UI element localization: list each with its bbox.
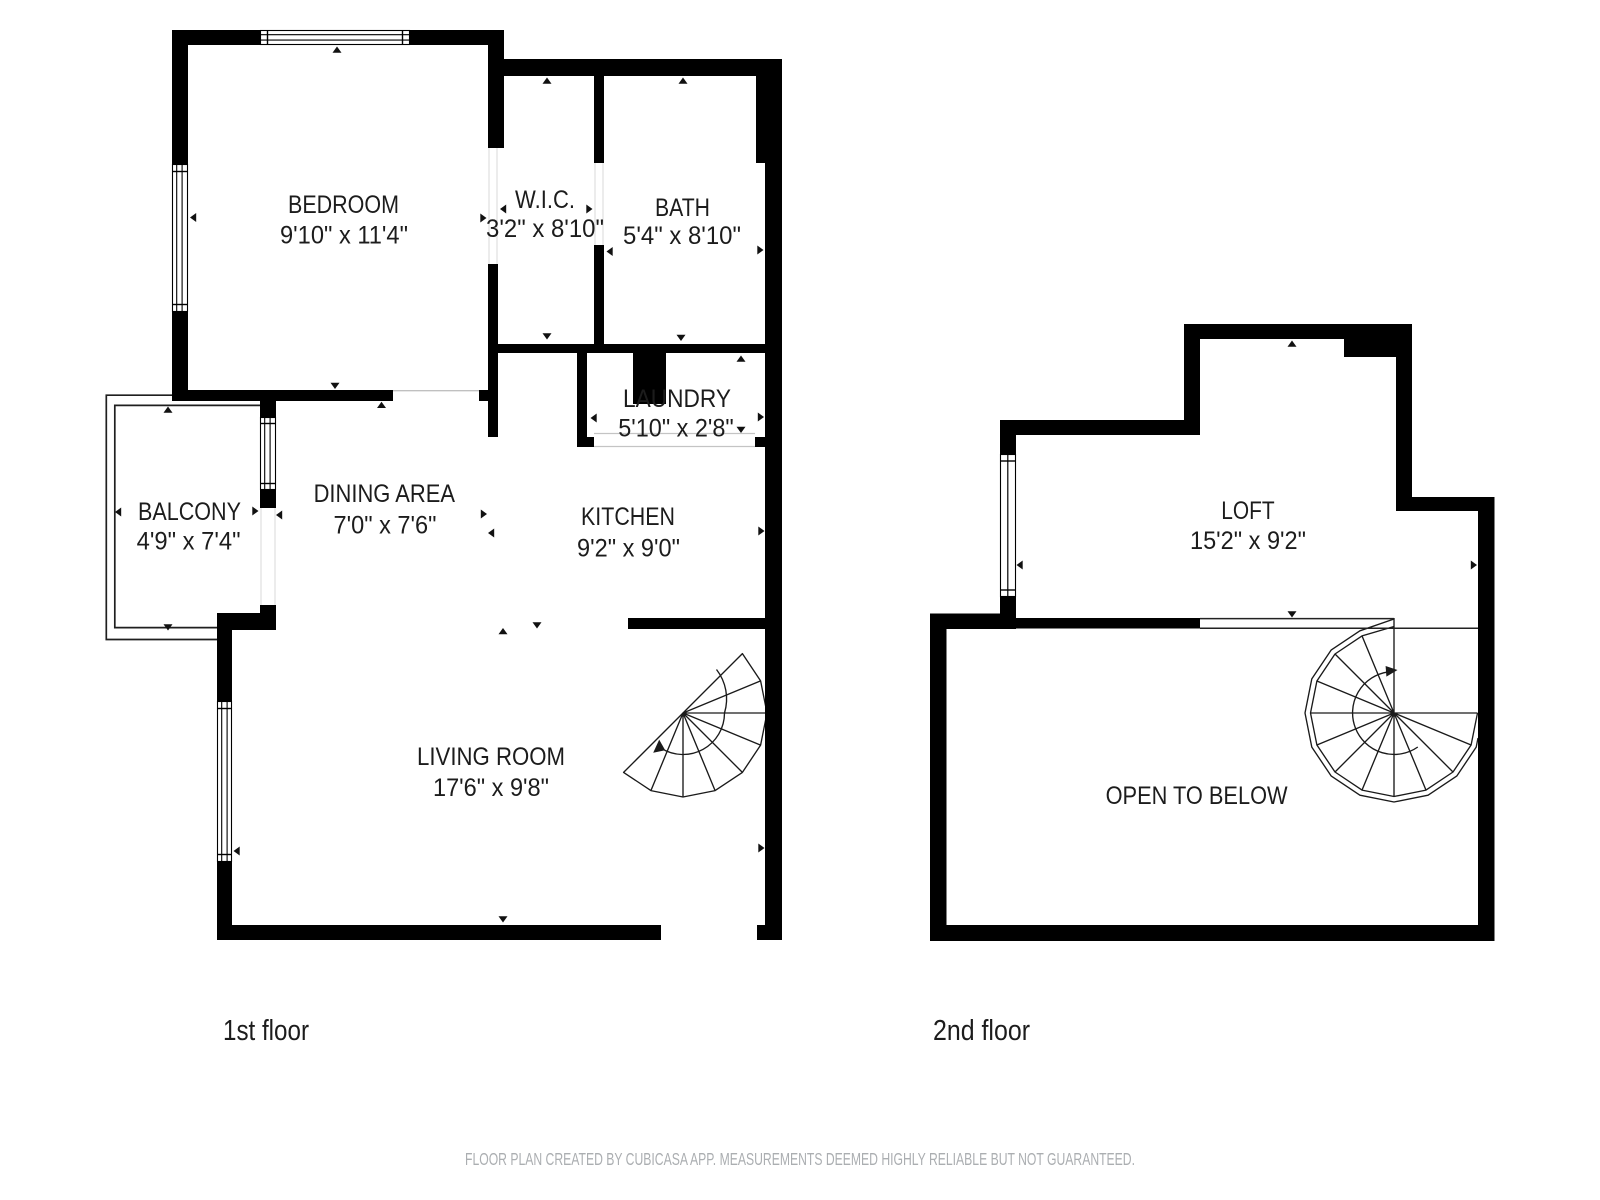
svg-text:5'4" x 8'10": 5'4" x 8'10" xyxy=(623,222,741,250)
svg-text:4'9" x 7'4": 4'9" x 7'4" xyxy=(137,528,241,556)
svg-text:15'2" x 9'2": 15'2" x 9'2" xyxy=(1190,527,1306,555)
svg-text:BEDROOM: BEDROOM xyxy=(288,191,399,219)
svg-text:DINING AREA: DINING AREA xyxy=(314,480,456,508)
svg-text:9'2" x 9'0": 9'2" x 9'0" xyxy=(577,535,680,563)
svg-text:BALCONY: BALCONY xyxy=(138,498,241,526)
svg-text:W.I.C.: W.I.C. xyxy=(515,186,575,214)
svg-text:LIVING ROOM: LIVING ROOM xyxy=(417,743,565,771)
svg-text:2nd floor: 2nd floor xyxy=(933,1015,1030,1047)
svg-text:KITCHEN: KITCHEN xyxy=(581,503,675,531)
svg-text:17'6" x 9'8": 17'6" x 9'8" xyxy=(433,774,549,802)
svg-text:5'10" x 2'8": 5'10" x 2'8" xyxy=(618,415,734,443)
svg-text:BATH: BATH xyxy=(655,194,710,222)
svg-text:LAUNDRY: LAUNDRY xyxy=(623,385,731,413)
svg-text:7'0" x 7'6": 7'0" x 7'6" xyxy=(334,512,437,540)
svg-text:1st floor: 1st floor xyxy=(223,1015,309,1047)
svg-text:OPEN TO BELOW: OPEN TO BELOW xyxy=(1106,782,1288,810)
svg-text:LOFT: LOFT xyxy=(1221,497,1274,525)
svg-text:9'10" x 11'4": 9'10" x 11'4" xyxy=(280,222,408,250)
svg-text:3'2" x 8'10": 3'2" x 8'10" xyxy=(486,215,604,243)
svg-text:FLOOR PLAN CREATED BY CUBICASA: FLOOR PLAN CREATED BY CUBICASA APP. MEAS… xyxy=(465,1149,1135,1169)
